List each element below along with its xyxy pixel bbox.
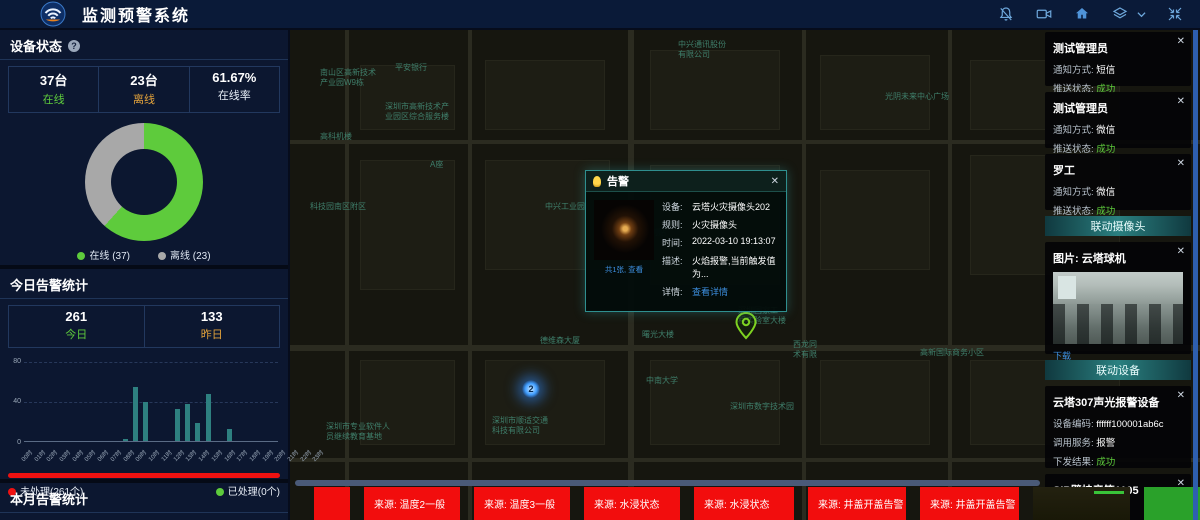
- stat-online: 37台 在线: [9, 67, 99, 112]
- close-icon[interactable]: ✕: [1177, 246, 1185, 257]
- camera-photo[interactable]: [1053, 272, 1183, 344]
- bar: [130, 362, 140, 441]
- map-place-label: 科技园南区附区: [310, 202, 366, 212]
- snapshot-link[interactable]: 共1张, 查看: [594, 264, 654, 275]
- bar: [234, 362, 244, 441]
- map-place-label: 光阴未来中心广场: [885, 92, 949, 102]
- bar: [36, 362, 46, 441]
- notification-card: ✕ 测试管理员 通知方式: 短信 推送状态: 成功: [1045, 32, 1191, 86]
- popup-row-desc: 描述: 火焰报警,当前触发值为...: [662, 254, 778, 280]
- top-bar: 监测预警系统: [0, 0, 1200, 30]
- map-place-label: 平安银行: [395, 63, 427, 73]
- map-place-label: A座: [430, 160, 443, 170]
- bottom-alert-strip: 来源: 温度2一般来源: 温度3一般来源: 水浸状态来源: 水浸状态来源: 井盖…: [290, 487, 1200, 520]
- alarm-thumbnail-green[interactable]: [1144, 487, 1200, 520]
- collapse-fullscreen-icon[interactable]: [1166, 5, 1184, 23]
- map-place-label: 深圳市专业软件人 员继续教育基地: [326, 422, 390, 443]
- today-bar-plot: [24, 362, 278, 441]
- view-details-link[interactable]: 查看详情: [692, 285, 778, 298]
- alarm-source-block[interactable]: 来源: 水浸状态: [584, 487, 680, 520]
- location-pin-icon[interactable]: [735, 312, 757, 340]
- map-place-label: 高科机楼: [320, 132, 352, 142]
- unhandled-progress-bar: [8, 473, 280, 478]
- panel-title: 设备状态: [10, 36, 62, 55]
- camera-snapshot-card: ✕ 图片: 云塔球机 下载: [1045, 242, 1191, 354]
- map-place-label: 高新国际商务小区: [920, 348, 984, 358]
- legend-handled: 已处理(0个): [216, 483, 280, 498]
- map-place-label: 中兴工业园: [545, 202, 585, 212]
- popup-row-rule: 规则: 火灾摄像头: [662, 218, 778, 231]
- panel-title: 本月告警统计: [10, 489, 88, 508]
- device-stats-row: 37台 在线 23台 离线 61.67% 在线率: [8, 66, 280, 113]
- today-alarms-panel: 今日告警统计 261 今日 133 昨日 80 40 0 00时01时02时03…: [0, 265, 288, 479]
- bar: [193, 362, 203, 441]
- bar: [26, 362, 36, 441]
- close-icon[interactable]: ✕: [1177, 96, 1185, 107]
- today-stats-row: 261 今日 133 昨日: [8, 305, 280, 348]
- left-sidebar: 设备状态 ? 37台 在线 23台 离线 61.67% 在线率 在线 (37) …: [0, 30, 290, 520]
- bar: [161, 362, 171, 441]
- popup-row-detail: 详情: 查看详情: [662, 285, 778, 298]
- bar: [99, 362, 109, 441]
- alarm-source-block[interactable]: [314, 487, 350, 520]
- bar: [57, 362, 67, 441]
- alarm-source-block[interactable]: 来源: 井盖开盖告警: [808, 487, 906, 520]
- alarm-bulb-icon: [593, 176, 601, 187]
- vertical-scrollbar[interactable]: [1193, 30, 1198, 520]
- map-place-label: 德维森大厦: [540, 336, 580, 346]
- stat-offline: 23台 离线: [99, 67, 189, 112]
- alarm-source-block[interactable]: 来源: 水浸状态: [694, 487, 794, 520]
- bar: [203, 362, 213, 441]
- gray-dot-icon: [158, 252, 166, 260]
- panel-title: 今日告警统计: [10, 275, 88, 294]
- chevron-down-icon[interactable]: [1137, 10, 1146, 19]
- stat-today: 261 今日: [9, 306, 145, 347]
- horizontal-scrollbar[interactable]: [295, 480, 1040, 486]
- map-place-label: 中兴通讯股份 有限公司: [678, 40, 726, 61]
- bar: [151, 362, 161, 441]
- video-camera-icon[interactable]: [1035, 5, 1053, 23]
- stat-yesterday: 133 昨日: [145, 306, 280, 347]
- bar: [245, 362, 255, 441]
- popup-title: 告警: [607, 173, 765, 189]
- bar: [47, 362, 57, 441]
- close-icon[interactable]: ✕: [1177, 158, 1185, 169]
- map-place-label: 深圳市数字技术园: [730, 402, 794, 412]
- bar: [68, 362, 78, 441]
- alarm-source-block[interactable]: 来源: 温度3一般: [474, 487, 570, 520]
- download-link[interactable]: 下载: [1053, 349, 1071, 362]
- bar: [255, 362, 265, 441]
- bar: [224, 362, 234, 441]
- map-place-label: 深圳市顺适交通 科技有限公司: [492, 416, 548, 437]
- popup-row-device: 设备: 云塔火灾摄像头202: [662, 200, 778, 213]
- bell-muted-icon[interactable]: [997, 5, 1015, 23]
- bar: [109, 362, 119, 441]
- popup-close-icon[interactable]: ✕: [771, 176, 779, 187]
- device-status-panel: 设备状态 ? 37台 在线 23台 离线 61.67% 在线率 在线 (37) …: [0, 30, 288, 265]
- popup-row-time: 时间: 2022-03-10 19:13:07: [662, 236, 778, 249]
- alarm-source-block[interactable]: 来源: 井盖开盖告警: [920, 487, 1019, 520]
- home-icon[interactable]: [1073, 5, 1091, 23]
- notification-card: ✕ 测试管理员 通知方式: 微信 推送状态: 成功: [1045, 92, 1191, 148]
- bar: [141, 362, 151, 441]
- page-title: 监测预警系统: [82, 2, 190, 26]
- alarm-popup: 告警 ✕ 共1张, 查看 设备: 云塔火灾摄像头202 规则: 火灾摄像头 时间…: [585, 170, 787, 312]
- device-donut-chart: [85, 123, 203, 241]
- legend-online: 在线 (37): [77, 247, 130, 262]
- layers-icon[interactable]: [1111, 5, 1129, 23]
- today-bar-chart: 80 40 0: [24, 362, 278, 442]
- map-place-label: 中南大学: [646, 376, 678, 386]
- fire-image[interactable]: [594, 200, 654, 260]
- legend-offline: 离线 (23): [158, 247, 211, 262]
- alarm-thumbnail-dark[interactable]: [1033, 487, 1130, 520]
- linked-camera-header: 联动摄像头: [1045, 216, 1191, 236]
- today-bar-xlabels: 00时01时02时03时04时05时06时07时08时09时10时11时12时1…: [24, 445, 278, 465]
- right-panel: ✕ 测试管理员 通知方式: 短信 推送状态: 成功 ✕ 测试管理员 通知方式: …: [1045, 32, 1191, 520]
- map-place-label: 深圳市高新技术产 业园区综合服务楼: [385, 102, 449, 123]
- bar: [78, 362, 88, 441]
- bar: [120, 362, 130, 441]
- linked-device-card: ✕ 云塔307声光报警设备 设备编码: ffffff100001ab6c 调用服…: [1045, 386, 1191, 468]
- alarm-snapshot[interactable]: 共1张, 查看: [594, 200, 654, 303]
- map-place-label: 曙光大楼: [642, 330, 674, 340]
- bar: [266, 362, 276, 441]
- map-place-label: 南山区高新技术 产业园W9栋: [320, 68, 376, 89]
- app-logo-icon: [40, 1, 66, 27]
- close-icon[interactable]: ✕: [1177, 390, 1185, 401]
- bar: [172, 362, 182, 441]
- bar: [89, 362, 99, 441]
- stat-online-rate: 61.67% 在线率: [190, 67, 279, 112]
- notification-card: ✕ 罗工 通知方式: 微信 推送状态: 成功: [1045, 154, 1191, 210]
- map-place-label: 西龙同 术有限: [793, 340, 817, 361]
- close-icon[interactable]: ✕: [1177, 36, 1185, 47]
- alarm-source-block[interactable]: 来源: 温度2一般: [364, 487, 460, 520]
- bar: [182, 362, 192, 441]
- cluster-marker[interactable]: 2: [522, 380, 540, 398]
- help-icon[interactable]: ?: [68, 40, 80, 52]
- green-dot-icon: [77, 252, 85, 260]
- green-dot-icon: [216, 488, 224, 496]
- bar: [214, 362, 224, 441]
